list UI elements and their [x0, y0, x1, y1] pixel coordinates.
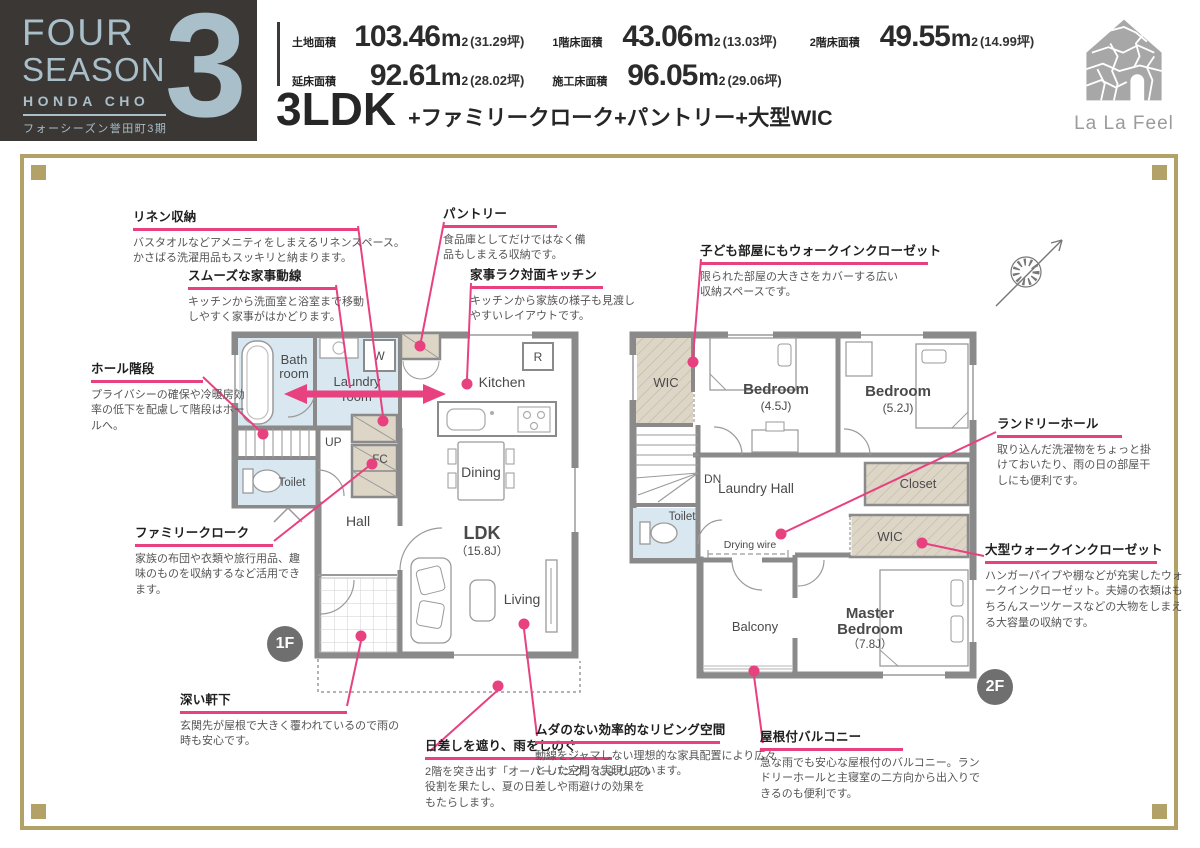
annotation-title: リネン収納 — [133, 206, 411, 225]
room-label-drying-wire: Drying wire — [724, 539, 777, 551]
annotation-underline — [997, 435, 1122, 438]
annotation-underline — [760, 748, 903, 751]
annotation-body: 急な雨でも安心な屋根付のバルコニー。ランドリーホールと主寝室の二方向から出入りで… — [760, 756, 982, 804]
measure-tsubo: (13.03坪) — [723, 31, 777, 50]
room-label-bedroom1: Bedroom — [743, 381, 809, 398]
toilet-icon-2f — [640, 522, 677, 544]
annotation-deep-eaves: 深い軒下 玄関先が屋根で大きく覆われているので雨の時も安心です。 — [180, 689, 402, 750]
annotation-body: キッチンから家族の様子も見渡しやすいレイアウトです。 — [470, 294, 642, 326]
annotation-underline — [700, 262, 928, 265]
coffee-table-icon — [470, 580, 495, 621]
annotation-title: パントリー — [443, 203, 593, 222]
annotation-body: 取り込んだ洗濯物をちょっと掛けておいたり、雨の日の部屋干しにも便利です。 — [997, 443, 1159, 491]
family-closet — [352, 445, 397, 497]
room-label-master1: Master — [846, 605, 895, 622]
measure-value: 43.06 — [602, 20, 692, 54]
logo-text-hondacho: HONDA CHO — [23, 93, 149, 109]
porch-mark — [274, 508, 302, 522]
tv-board-icon — [546, 560, 557, 632]
room-label-bedroom1-size: (4.5J) — [761, 399, 792, 413]
annotation-body: 動線をジャマしない理想的な家具配置により広々とした空間を実現しています。 — [535, 749, 779, 781]
room-label-wic: WIC — [653, 375, 678, 390]
measure-label: 1階床面積 — [552, 34, 602, 50]
room-label-ldk: LDK — [464, 523, 501, 543]
annotation-body: ハンガーパイプや棚などが充実したウォークインクローゼット。夫婦の衣類はもちろんス… — [985, 569, 1183, 633]
frame-corner — [1152, 165, 1167, 180]
room-label-bath2: room — [279, 366, 309, 381]
measure-unit: m — [441, 25, 461, 52]
frame-corner — [31, 804, 46, 819]
annotation-title: 子ども部屋にもウォークインクローゼット — [700, 240, 941, 259]
plan-title: 3LDK +ファミリークローク+パントリー+大型WIC — [276, 82, 833, 136]
annotation-title: 深い軒下 — [180, 689, 402, 708]
room-label-fc: FC — [372, 454, 387, 466]
annotation-underline — [133, 228, 358, 231]
annotation-family-cloak: ファミリークローク 家族の布団や衣類や旅行用品、趣味のものを収納するなど活用でき… — [135, 522, 307, 599]
shelf-icon-bedroom2 — [846, 342, 872, 376]
room-label-kitchen: Kitchen — [479, 374, 526, 390]
annotation-underline — [470, 286, 603, 289]
annotation-roofed-balcony: 屋根付バルコニー 急な雨でも安心な屋根付のバルコニー。ランドリーホールと主寝室の… — [760, 726, 982, 803]
annotation-pantry: パントリー 食品庫としてだけではなく備品もしまえる収納です。 — [443, 203, 593, 264]
annotation-underline — [91, 380, 203, 383]
annotation-title: 屋根付バルコニー — [760, 726, 982, 745]
room-label-bedroom2: Bedroom — [865, 383, 931, 400]
vanity-icon — [320, 338, 358, 358]
measure-2f-area: 2階床面積 49.55 m2 (14.99坪) — [810, 20, 1034, 54]
annotation-underline — [985, 561, 1157, 564]
room-label-master2: Bedroom — [837, 621, 903, 638]
sofa-icon — [411, 558, 451, 643]
annotation-body: キッチンから洗面室と浴室まで移動しやすく家事がはかどります。 — [188, 295, 364, 327]
measure-1f-area: 1階床面積 43.06 m2 (13.03坪) — [552, 20, 781, 54]
kitchen-counter-icon — [438, 402, 556, 436]
flyer-page: FOUR SEASON HONDA CHO フォーシーズン誉田町3期 3 土地面… — [0, 0, 1200, 848]
header-divider — [277, 22, 280, 86]
annotation-title: 大型ウォークインクローゼット — [985, 539, 1183, 558]
annotation-underline — [188, 287, 336, 290]
annotation-title: ランドリーホール — [997, 413, 1159, 432]
compass-icon — [988, 230, 1072, 314]
annotation-underline — [535, 741, 720, 744]
room-label-washer: W — [373, 349, 385, 363]
measure-value: 49.55 — [860, 20, 950, 54]
room-label-ldk-size: （15.8J） — [455, 544, 508, 558]
room-label-toilet-2f: Toilet — [669, 511, 697, 523]
annotation-body: 限られた部屋の大きさをカバーする広い収納スペースです。 — [700, 270, 898, 302]
measure-column-3: 2階床面積 49.55 m2 (14.99坪) — [810, 20, 1034, 98]
floor-plan-2f: WIC Bedroom (4.5J) Bedroom (5.2J) DN Lau… — [628, 330, 978, 695]
room-label-wic2: WIC — [877, 529, 902, 544]
room-label-master-size: （7.8J） — [848, 638, 893, 651]
toilet-icon-1f — [243, 469, 281, 493]
annotation-underline — [180, 711, 347, 714]
annotation-title: スムーズな家事動線 — [188, 265, 364, 284]
annotation-body: 家族の布団や衣類や旅行用品、趣味のものを収納するなど活用できます。 — [135, 552, 307, 600]
entrance-tile — [320, 578, 397, 652]
room-label-fridge: R — [534, 350, 543, 364]
room-label-bedroom2-size: (5.2J) — [883, 401, 914, 415]
annotation-body: 玄関先が屋根で大きく覆われているので雨の時も安心です。 — [180, 719, 402, 751]
measure-label: 2階床面積 — [810, 34, 860, 50]
annotation-title: 家事ラク対面キッチン — [470, 264, 642, 283]
annotation-body: バスタオルなどアメニティをしまえるリネンスペース。かさばる洗濯用品もスッキリと納… — [133, 236, 411, 268]
room-label-laundry-hall: Laundry Hall — [718, 481, 794, 496]
floor-badge-1f: 1F — [267, 626, 303, 662]
room-label-hall: Hall — [346, 513, 370, 529]
frame-corner — [31, 165, 46, 180]
annotation-underline — [443, 225, 557, 228]
room-label-closet: Closet — [900, 476, 937, 491]
room-label-bath: Bath — [281, 352, 308, 367]
room-label-living: Living — [504, 591, 541, 607]
logo-divider — [23, 114, 166, 116]
frame-corner — [1152, 804, 1167, 819]
plan-features: +ファミリークローク+パントリー+大型WIC — [408, 101, 833, 132]
annotation-large-wic: 大型ウォークインクローゼット ハンガーパイプや棚などが充実したウォークインクロー… — [985, 539, 1183, 632]
annotation-housework-flow: スムーズな家事動線 キッチンから洗面室と浴室まで移動しやすく家事がはかどります。 — [188, 265, 364, 326]
measure-label: 土地面積 — [292, 34, 336, 50]
annotation-title: ファミリークローク — [135, 522, 307, 541]
annotation-kids-wic: 子ども部屋にもウォークインクローゼット 限られた部屋の大きさをカバーする広い収納… — [700, 240, 941, 301]
house-mosaic-icon — [1082, 16, 1166, 104]
measure-tsubo: (31.29坪) — [470, 31, 524, 50]
room-label-laundry: Laundry — [334, 374, 381, 389]
master-wic — [850, 515, 968, 557]
room-label-balcony: Balcony — [732, 619, 779, 634]
annotation-underline — [135, 544, 273, 547]
annotation-hall-stairs: ホール階段 プライバシーの確保や冷暖房効率の低下を配慮して階段はホールへ。 — [91, 358, 253, 435]
brand-name: La La Feel — [1058, 113, 1190, 135]
measure-unit: m — [693, 25, 713, 52]
logo-text-four: FOUR — [22, 12, 135, 54]
annotation-linen-storage: リネン収納 バスタオルなどアメニティをしまえるリネンスペース。かさばる洗濯用品も… — [133, 206, 411, 267]
logo-subtitle: フォーシーズン誉田町3期 — [23, 120, 167, 136]
annotation-living-space: ムダのない効率的なリビング空間 動線をジャマしない理想的な家具配置により広々とし… — [535, 719, 779, 780]
measure-unit-sup: 2 — [714, 35, 721, 49]
room-label-dining: Dining — [461, 464, 501, 480]
annotation-laundry-hall: ランドリーホール 取り込んだ洗濯物をちょっと掛けておいたり、雨の日の部屋干しにも… — [997, 413, 1159, 490]
measure-tsubo: (14.99坪) — [980, 31, 1034, 50]
measure-unit: m — [951, 25, 971, 52]
measure-unit-sup: 2 — [461, 35, 468, 49]
plan-type: 3LDK — [276, 82, 396, 136]
project-logo: FOUR SEASON HONDA CHO フォーシーズン誉田町3期 3 — [0, 0, 257, 141]
floor-badge-2f: 2F — [977, 669, 1013, 705]
annotation-body: プライバシーの確保や冷暖房効率の低下を配慮して階段はホールへ。 — [91, 388, 253, 436]
brand-logo: La La Feel — [1058, 16, 1190, 135]
annotation-body: 食品庫としてだけではなく備品もしまえる収納です。 — [443, 233, 593, 265]
measure-unit-sup: 2 — [971, 35, 978, 49]
overhang-outline — [318, 659, 580, 692]
annotation-title: ホール階段 — [91, 358, 253, 377]
room-label-laundry2: room — [342, 389, 372, 404]
logo-text-season: SEASON — [22, 51, 166, 89]
annotation-title: ムダのない効率的なリビング空間 — [535, 719, 779, 738]
linen-closet — [352, 415, 397, 442]
measure-value: 103.46 — [336, 20, 440, 54]
phase-number: 3 — [165, 0, 247, 146]
measure-land-area: 土地面積 103.46 m2 (31.29坪) — [292, 20, 524, 54]
room-label-toilet-1f: Toilet — [279, 477, 307, 489]
annotation-kitchen: 家事ラク対面キッチン キッチンから家族の様子も見渡しやすいレイアウトです。 — [470, 264, 642, 325]
room-label-up: UP — [325, 435, 342, 449]
